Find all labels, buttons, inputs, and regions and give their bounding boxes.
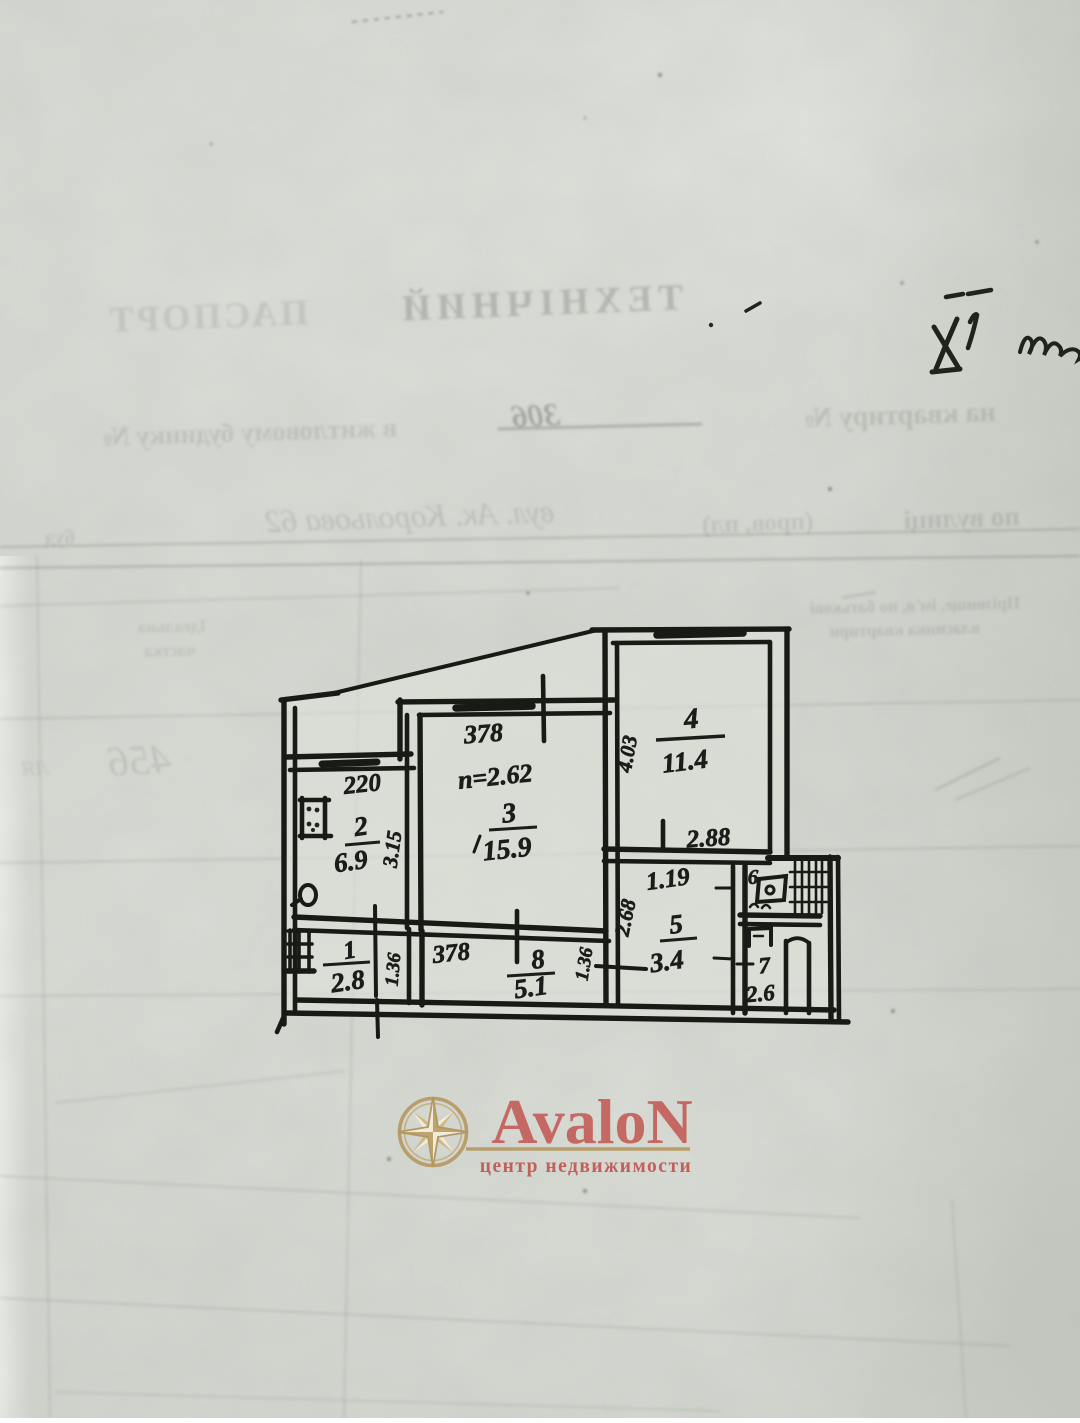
svg-text:частка: частка: [143, 640, 196, 660]
svg-text:456: 456: [107, 736, 172, 785]
svg-text:2.6: 2.6: [744, 980, 776, 1008]
svg-text:378: 378: [462, 718, 504, 750]
svg-text:6.9: 6.9: [332, 844, 370, 878]
svg-text:5.1: 5.1: [512, 970, 550, 1004]
svg-text:2.88: 2.88: [685, 823, 732, 853]
svg-text:Ідеальна: Ідеальна: [137, 616, 206, 637]
svg-text:власника квартири: власника квартири: [829, 618, 980, 641]
svg-text:11.4: 11.4: [660, 743, 709, 778]
svg-text:2.8: 2.8: [328, 964, 367, 999]
svg-text:1.36: 1.36: [382, 952, 406, 987]
svg-text:на квартиру №: на квартиру №: [803, 397, 996, 434]
svg-text:AvaloN: AvaloN: [491, 1086, 692, 1157]
svg-text:ля: ля: [20, 748, 51, 782]
svg-text:ПАСПОРТ: ПАСПОРТ: [106, 292, 309, 340]
svg-text:4: 4: [682, 702, 700, 735]
svg-text:6: 6: [748, 865, 759, 889]
svg-text:378: 378: [430, 938, 472, 969]
svg-text:центр недвижимости: центр недвижимости: [480, 1156, 693, 1177]
svg-text:3.4: 3.4: [647, 944, 686, 979]
svg-text:220: 220: [341, 769, 383, 800]
svg-text:15.9: 15.9: [481, 832, 533, 868]
